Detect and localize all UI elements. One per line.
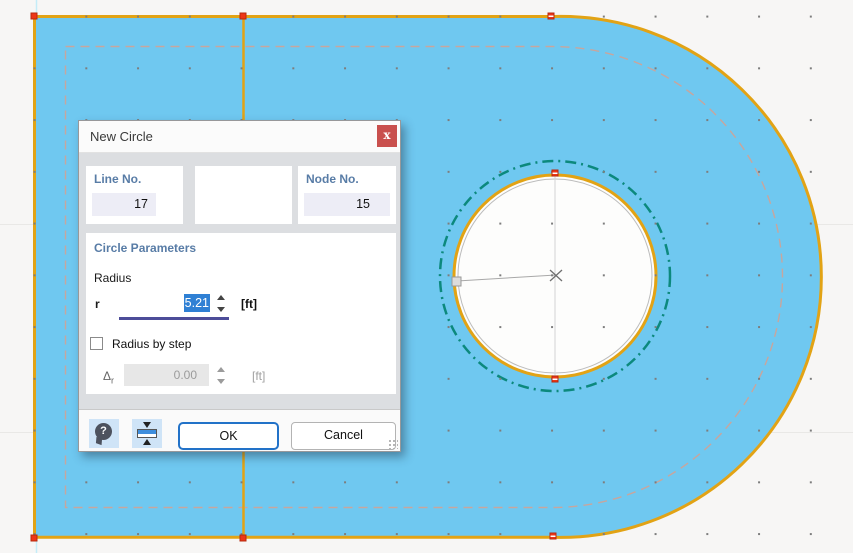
node-marker[interactable] [548, 13, 555, 20]
delta-r-label: Δr [103, 369, 114, 385]
spin-down-icon[interactable] [217, 307, 225, 312]
help-bubble-tail [96, 437, 102, 445]
radius-drag-handle[interactable] [452, 277, 461, 286]
node-no-field[interactable]: 15 [304, 193, 390, 216]
delta-r-spinner [214, 364, 228, 387]
delta-r-input: 0.00 [124, 364, 209, 386]
close-icon[interactable]: x [377, 125, 397, 147]
circle-parameters-title: Circle Parameters [94, 241, 196, 255]
r-label: r [95, 297, 100, 311]
line-no-group: Line No. 17 [86, 166, 183, 224]
dialog-footer: ? OK Cancel [79, 409, 400, 451]
node-marker[interactable] [240, 535, 247, 542]
radius-unit: [ft] [241, 297, 257, 311]
radius-spinner[interactable] [214, 292, 228, 315]
resize-grip[interactable] [387, 438, 398, 449]
line-no-field[interactable]: 17 [92, 193, 156, 216]
ok-button[interactable]: OK [178, 422, 279, 450]
radius-input[interactable]: 5.21 [119, 292, 210, 315]
node-no-label: Node No. [306, 172, 359, 186]
delta-r-unit: [ft] [252, 369, 265, 383]
spin-up-icon[interactable] [217, 295, 225, 300]
node-marker[interactable] [550, 533, 557, 540]
spin-down-icon [217, 379, 225, 384]
arrow-down-icon [143, 422, 151, 428]
radius-by-step-checkbox[interactable] [90, 337, 103, 350]
help-button[interactable]: ? [89, 419, 119, 448]
node-no-group: Node No. 15 [298, 166, 396, 224]
compress-dialog-button[interactable] [132, 419, 162, 448]
circle-parameters-group: Circle Parameters Radius r 5.21 [ft] Rad… [86, 233, 396, 394]
radius-by-step-label: Radius by step [112, 337, 191, 351]
dialog-titlebar[interactable]: New Circle x [79, 121, 400, 153]
line-no-label: Line No. [94, 172, 141, 186]
focus-underline [119, 317, 229, 320]
spin-up-icon [217, 367, 225, 372]
empty-group [195, 166, 292, 224]
radius-heading: Radius [94, 271, 131, 285]
node-marker[interactable] [552, 376, 559, 383]
new-circle-dialog: New Circle x Line No. 17 Node No. 15 Cir… [78, 120, 401, 452]
node-marker[interactable] [552, 170, 559, 177]
node-marker[interactable] [240, 13, 247, 20]
node-marker[interactable] [31, 13, 38, 20]
radius-value-selected: 5.21 [184, 294, 210, 312]
cancel-button[interactable]: Cancel [291, 422, 396, 450]
arrow-up-icon [143, 439, 151, 445]
dialog-title: New Circle [90, 129, 153, 144]
node-marker[interactable] [31, 535, 38, 542]
compress-icon [137, 429, 157, 438]
